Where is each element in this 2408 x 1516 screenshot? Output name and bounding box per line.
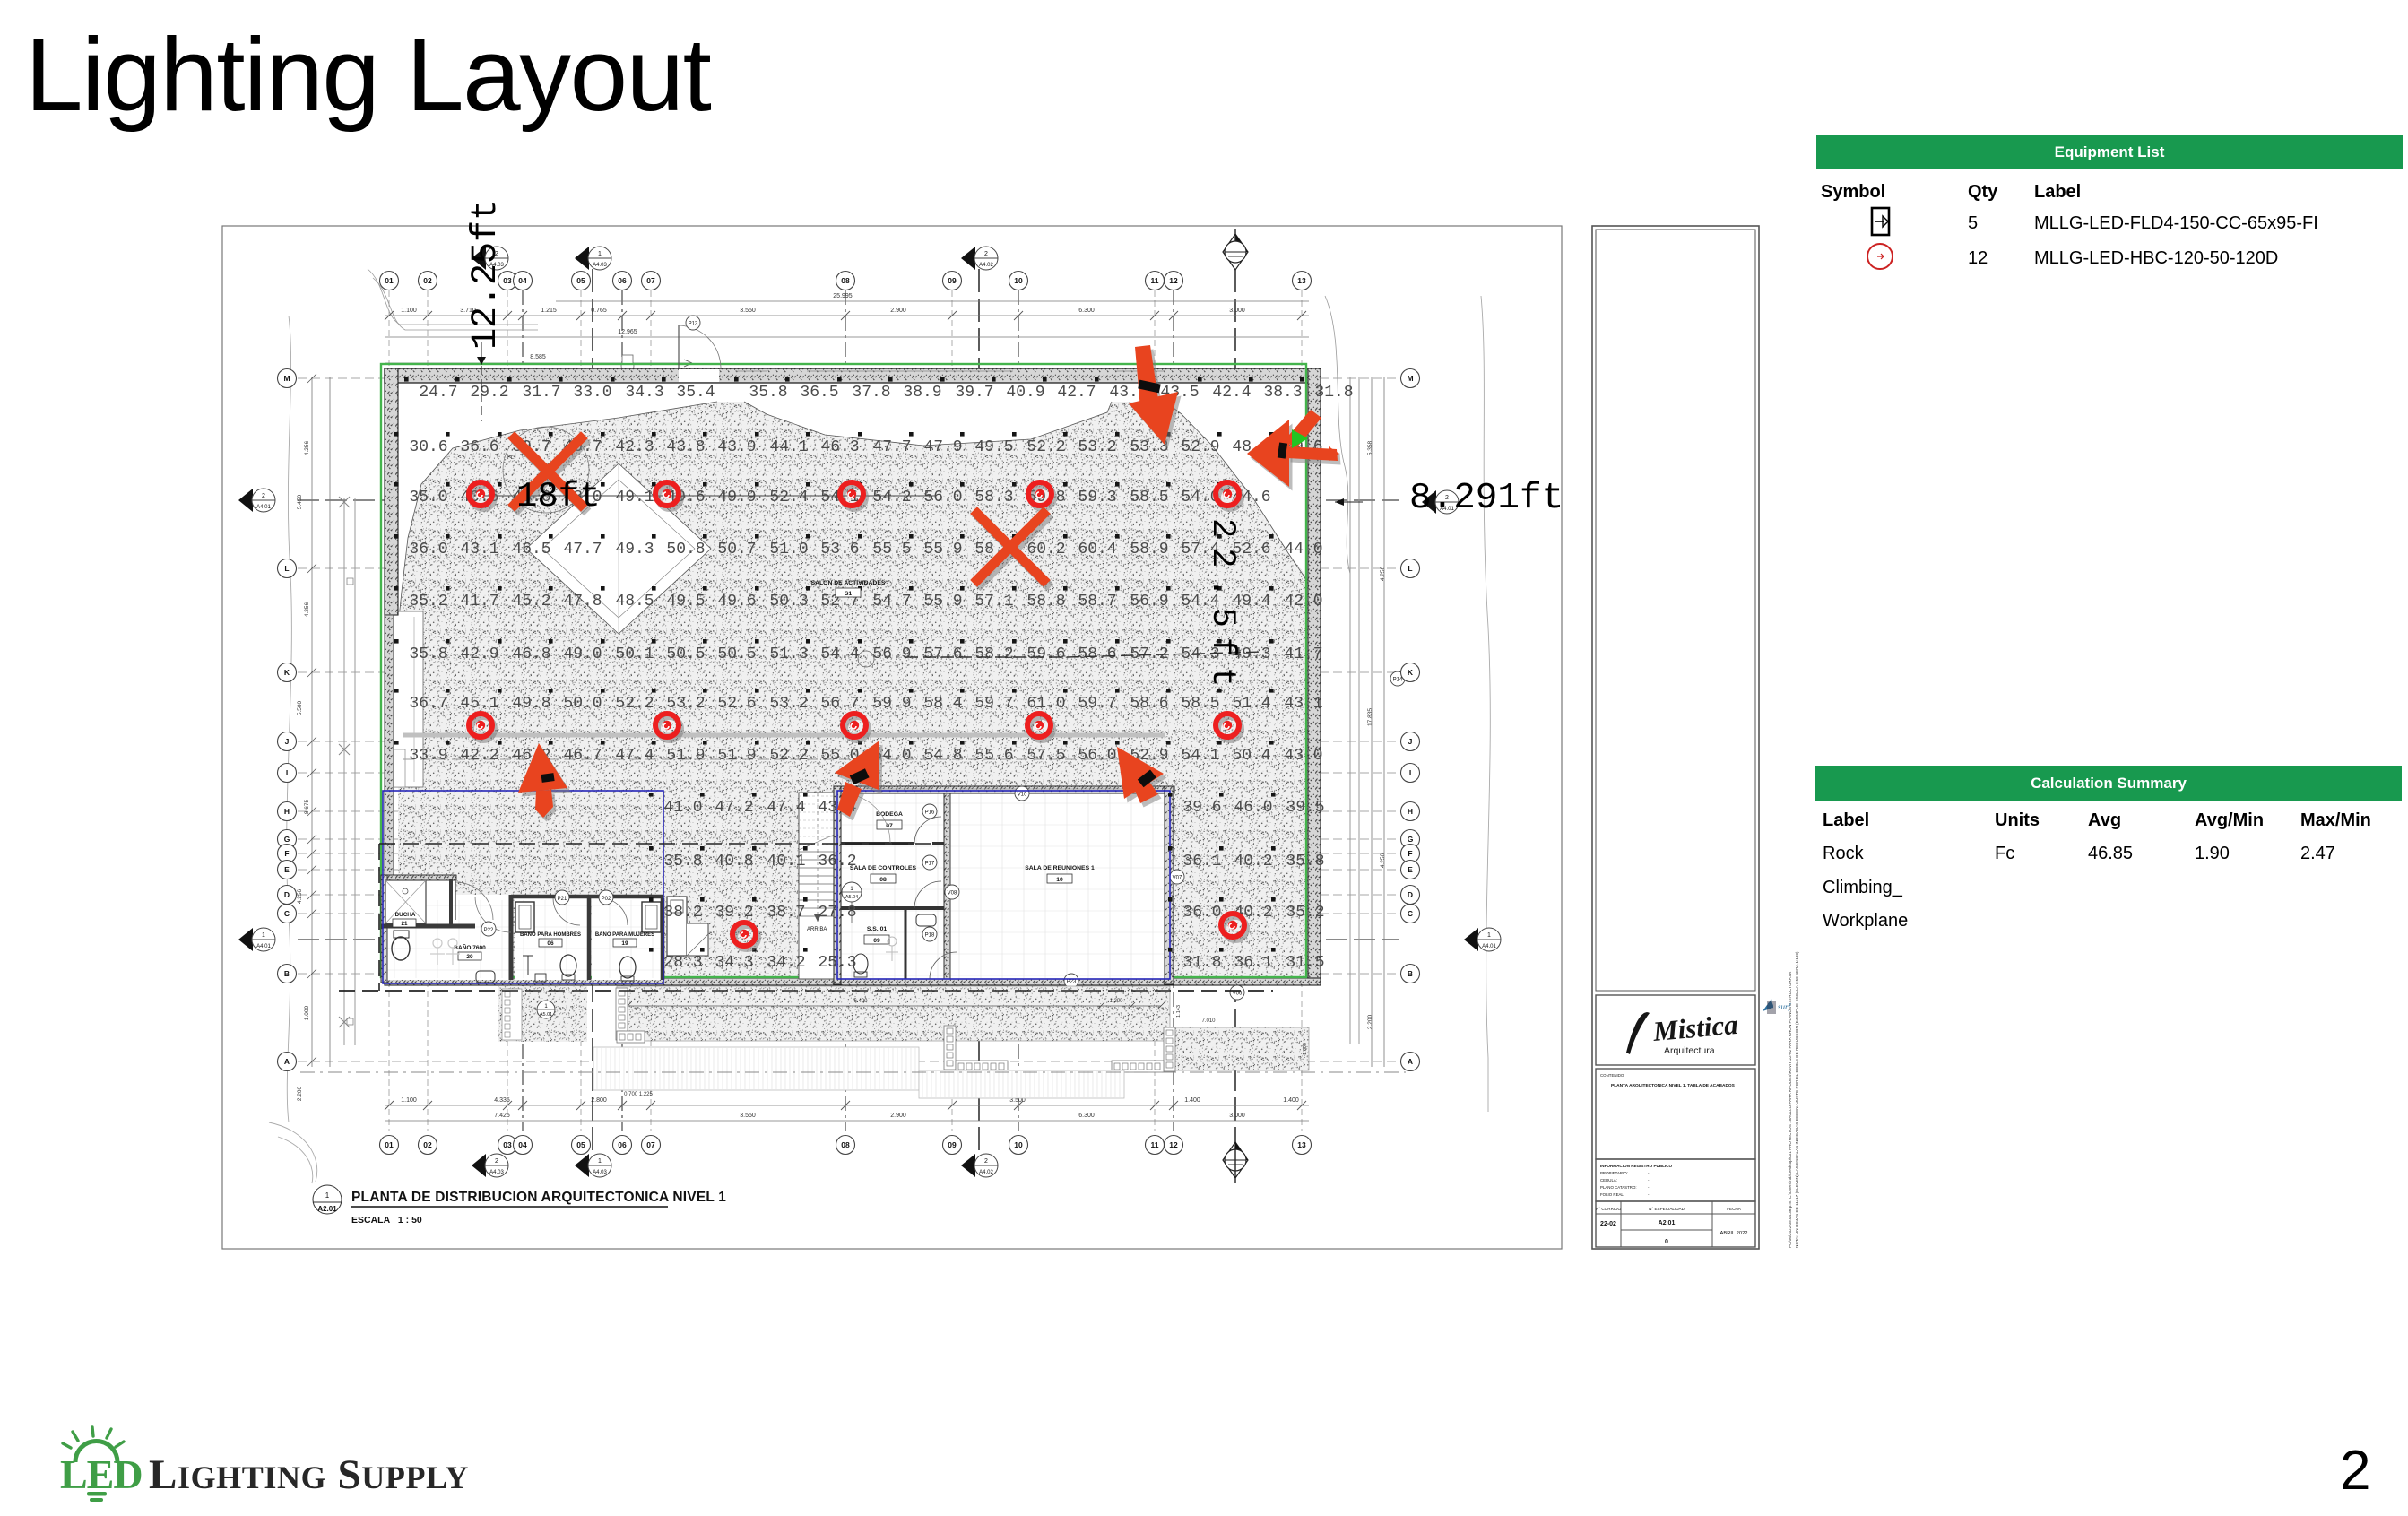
svg-text:22.5ft: 22.5ft — [1203, 518, 1241, 697]
svg-text:4.256: 4.256 — [304, 440, 310, 455]
svg-text:52.4: 52.4 — [769, 489, 808, 507]
svg-text:-: - — [1648, 1192, 1650, 1197]
svg-text:V08: V08 — [948, 891, 957, 897]
svg-text:55.9: 55.9 — [923, 593, 962, 611]
svg-text:S.S. 01: S.S. 01 — [867, 926, 888, 932]
svg-text:44.1: 44.1 — [769, 438, 808, 456]
svg-text:09: 09 — [948, 1140, 957, 1149]
svg-text:A4.02: A4.02 — [979, 1170, 993, 1175]
svg-text:1.400: 1.400 — [1184, 1097, 1200, 1104]
svg-text:S1: S1 — [845, 591, 853, 597]
svg-text:08: 08 — [841, 276, 850, 285]
svg-text:SALA DE REUNIONES 1: SALA DE REUNIONES 1 — [1025, 865, 1095, 871]
svg-text:B: B — [284, 969, 290, 978]
svg-text:36.7: 36.7 — [409, 695, 447, 713]
svg-text:7.010: 7.010 — [1201, 1018, 1216, 1024]
svg-text:E: E — [1408, 865, 1413, 874]
svg-text:36.1: 36.1 — [1234, 954, 1272, 972]
svg-text:25.3: 25.3 — [818, 954, 856, 972]
svg-text:33.9: 33.9 — [409, 747, 447, 765]
svg-text:G: G — [284, 835, 290, 844]
svg-text:05: 05 — [576, 276, 585, 285]
svg-text:53.2: 53.2 — [769, 695, 808, 713]
svg-text:50.4: 50.4 — [1232, 747, 1270, 765]
svg-text:BAÑO PARA MUJERES: BAÑO PARA MUJERES — [595, 931, 654, 938]
svg-text:38.7: 38.7 — [767, 904, 805, 922]
svg-text:35.8: 35.8 — [749, 384, 787, 402]
svg-text:57.6: 57.6 — [923, 645, 962, 663]
svg-text:50.5: 50.5 — [666, 645, 705, 663]
svg-text:C: C — [284, 909, 290, 918]
svg-text:34.2: 34.2 — [767, 954, 805, 972]
svg-text:39.7: 39.7 — [955, 384, 993, 402]
svg-text:55.6: 55.6 — [974, 747, 1013, 765]
svg-text:1.000: 1.000 — [304, 1005, 310, 1020]
svg-text:43.1: 43.1 — [460, 541, 498, 559]
svg-text:35.2: 35.2 — [409, 593, 447, 611]
svg-text:31.5: 31.5 — [1286, 954, 1324, 972]
svg-text:49.0: 49.0 — [563, 645, 602, 663]
svg-text:50.1: 50.1 — [615, 645, 654, 663]
svg-text:F: F — [1408, 849, 1412, 858]
svg-text:47.4: 47.4 — [767, 799, 805, 817]
svg-text:56.9: 56.9 — [1130, 593, 1168, 611]
svg-text:1.600: 1.600 — [1303, 1043, 1308, 1055]
svg-text:28.3: 28.3 — [663, 954, 702, 972]
svg-text:35.2: 35.2 — [1286, 904, 1324, 922]
svg-text:surf: surf — [1778, 1002, 1792, 1011]
svg-text:56.7: 56.7 — [820, 695, 859, 713]
svg-text:36.6: 36.6 — [460, 438, 498, 456]
svg-text:49.8: 49.8 — [512, 695, 550, 713]
svg-text:17.835: 17.835 — [1367, 708, 1373, 726]
svg-text:36.0: 36.0 — [409, 541, 447, 559]
svg-text:39.2: 39.2 — [715, 904, 753, 922]
svg-text:PLANTA ARQUITECTONICA NIVEL 1,: PLANTA ARQUITECTONICA NIVEL 1, TABLA DE … — [1611, 1083, 1736, 1088]
svg-text:50.7: 50.7 — [717, 541, 756, 559]
svg-text:45.2: 45.2 — [512, 593, 550, 611]
svg-text:J: J — [285, 737, 290, 746]
svg-text:07: 07 — [646, 276, 655, 285]
svg-text:47.7: 47.7 — [872, 438, 911, 456]
svg-text:47.4: 47.4 — [615, 747, 654, 765]
svg-text:49.5: 49.5 — [974, 438, 1013, 456]
svg-text:41.0: 41.0 — [663, 799, 702, 817]
svg-text:42.3: 42.3 — [615, 438, 654, 456]
svg-text:PROPIETARIO:: PROPIETARIO: — [1600, 1171, 1628, 1175]
svg-text:59.3: 59.3 — [1078, 489, 1116, 507]
svg-text:L: L — [284, 564, 289, 573]
svg-text:40.9: 40.9 — [1006, 384, 1044, 402]
svg-text:Mistica: Mistica — [1651, 1009, 1739, 1047]
svg-text:A2.01: A2.01 — [317, 1205, 337, 1213]
svg-text:58.4: 58.4 — [923, 695, 962, 713]
svg-text:37.8: 37.8 — [852, 384, 890, 402]
svg-text:25.995: 25.995 — [833, 293, 853, 299]
svg-text:J: J — [1408, 737, 1413, 746]
svg-text:I: I — [1409, 768, 1411, 777]
svg-text:K: K — [1408, 668, 1414, 677]
svg-text:03: 03 — [503, 1140, 512, 1149]
svg-text:59.7: 59.7 — [974, 695, 1013, 713]
svg-text:39.6: 39.6 — [1182, 799, 1221, 817]
svg-text:52.2: 52.2 — [1026, 438, 1065, 456]
svg-text:2: 2 — [984, 1158, 988, 1165]
svg-text:47.9: 47.9 — [923, 438, 962, 456]
svg-text:A4.01: A4.01 — [1482, 944, 1496, 949]
svg-text:47.2: 47.2 — [715, 799, 753, 817]
svg-text:58.8: 58.8 — [1026, 593, 1065, 611]
svg-text:SALA DE CONTROLES: SALA DE CONTROLES — [850, 865, 917, 871]
svg-text:1: 1 — [325, 1191, 330, 1200]
svg-text:Arquitectura: Arquitectura — [1664, 1045, 1715, 1056]
svg-text:G: G — [1408, 835, 1414, 844]
svg-text:40.8: 40.8 — [715, 853, 753, 871]
svg-text:57.1: 57.1 — [974, 593, 1013, 611]
svg-text:36.1: 36.1 — [1182, 853, 1221, 871]
svg-text:3.000: 3.000 — [1229, 1113, 1245, 1119]
svg-text:2.200: 2.200 — [1367, 1014, 1373, 1029]
svg-text:31.8: 31.8 — [1314, 384, 1353, 402]
svg-text:4.256: 4.256 — [297, 888, 303, 904]
svg-text:49.6: 49.6 — [717, 593, 756, 611]
svg-text:A: A — [284, 1057, 290, 1066]
svg-text:56.0: 56.0 — [923, 489, 962, 507]
svg-text:3.550: 3.550 — [740, 308, 756, 314]
svg-text:57.5: 57.5 — [1026, 747, 1065, 765]
svg-text:35.0: 35.0 — [409, 489, 447, 507]
svg-text:41.7: 41.7 — [460, 593, 498, 611]
svg-text:N° CORRIDO: N° CORRIDO — [1596, 1207, 1622, 1211]
svg-text:27.8: 27.8 — [818, 904, 856, 922]
svg-text:-: - — [1648, 1171, 1650, 1175]
svg-text:43.9: 43.9 — [717, 438, 756, 456]
svg-text:DUCHA: DUCHA — [395, 912, 416, 918]
svg-text:FECHA: FECHA — [1727, 1207, 1742, 1211]
svg-text:39.5: 39.5 — [1286, 799, 1324, 817]
svg-text:53.6: 53.6 — [820, 541, 859, 559]
svg-text:A4.02: A4.02 — [979, 263, 993, 268]
svg-text:2.800: 2.800 — [591, 1097, 607, 1104]
svg-text:P17: P17 — [925, 862, 935, 867]
svg-text:A5.04: A5.04 — [845, 895, 858, 900]
svg-text:CONTENIDO: CONTENIDO — [1600, 1073, 1624, 1078]
svg-text:41.7: 41.7 — [1284, 645, 1322, 663]
svg-text:54.1: 54.1 — [1181, 747, 1219, 765]
svg-text:D: D — [1408, 890, 1413, 899]
svg-text:C: C — [1408, 909, 1413, 918]
svg-text:A5.01: A5.01 — [540, 1012, 552, 1018]
svg-text:46.3: 46.3 — [820, 438, 859, 456]
svg-text:42.4: 42.4 — [1212, 384, 1251, 402]
svg-text:53.2: 53.2 — [666, 695, 705, 713]
svg-text:D: D — [284, 890, 290, 899]
svg-text:46.7: 46.7 — [563, 747, 602, 765]
svg-text:22-02: 22-02 — [1600, 1221, 1616, 1227]
svg-text:P22: P22 — [484, 928, 494, 933]
svg-text:50.0: 50.0 — [563, 695, 602, 713]
svg-text:53.2: 53.2 — [1078, 438, 1116, 456]
svg-text:1: 1 — [598, 251, 602, 257]
svg-text:ARRIBA: ARRIBA — [807, 927, 827, 932]
svg-text:10: 10 — [1014, 1140, 1023, 1149]
svg-text:58.5: 58.5 — [1181, 695, 1219, 713]
svg-text:43.0: 43.0 — [1284, 747, 1322, 765]
svg-text:V10: V10 — [1018, 793, 1027, 798]
svg-text:M: M — [1407, 374, 1413, 383]
svg-text:8.585: 8.585 — [530, 354, 546, 360]
svg-text:3.550: 3.550 — [740, 1113, 756, 1119]
svg-text:06: 06 — [547, 940, 554, 947]
svg-text:L: L — [1408, 564, 1412, 573]
svg-text:FOLIO REAL:: FOLIO REAL: — [1600, 1192, 1624, 1197]
svg-text:09: 09 — [948, 276, 957, 285]
svg-text:SALON DE ACTIVIDADES: SALON DE ACTIVIDADES — [811, 580, 886, 586]
svg-text:19: 19 — [621, 940, 628, 947]
svg-text:5.358: 5.358 — [1367, 440, 1373, 455]
svg-text:A: A — [1408, 1057, 1413, 1066]
svg-text:61.0: 61.0 — [1026, 695, 1065, 713]
svg-text:51.9: 51.9 — [717, 747, 756, 765]
svg-text:1.215: 1.215 — [541, 308, 557, 314]
svg-text:02: 02 — [423, 1140, 432, 1149]
svg-text:51.9: 51.9 — [666, 747, 705, 765]
svg-text:2: 2 — [495, 1158, 498, 1165]
svg-text:1.100: 1.100 — [401, 1097, 417, 1104]
svg-text:2: 2 — [984, 251, 988, 257]
svg-text:58.5: 58.5 — [1130, 489, 1168, 507]
svg-text:-: - — [1648, 1185, 1650, 1190]
svg-text:N° ESPECIALIDAD: N° ESPECIALIDAD — [1649, 1207, 1685, 1211]
svg-text:P16: P16 — [925, 810, 935, 816]
svg-text:36.0: 36.0 — [1182, 904, 1221, 922]
svg-text:35.8: 35.8 — [1286, 853, 1324, 871]
svg-text:-: - — [1648, 1178, 1650, 1182]
svg-text:31.8: 31.8 — [1182, 954, 1221, 972]
svg-text:12.25ft: 12.25ft — [466, 199, 507, 350]
svg-text:ABRIL 2022: ABRIL 2022 — [1719, 1231, 1747, 1236]
svg-text:7.425: 7.425 — [494, 1113, 510, 1119]
svg-text:1.100: 1.100 — [401, 308, 417, 314]
svg-text:60.2: 60.2 — [1026, 541, 1065, 559]
svg-text:42.9: 42.9 — [460, 645, 498, 663]
svg-text:44.0: 44.0 — [1284, 541, 1322, 559]
svg-text:36.2: 36.2 — [818, 853, 856, 871]
svg-text:PC/06/2022 05:04:36 p.m. C:\: PC/06/2022 05:04:36 p.m. C:\Users\rob\De… — [1788, 971, 1792, 1248]
svg-text:30.6: 30.6 — [409, 438, 447, 456]
svg-text:ESCALA 1 : 50: ESCALA 1 : 50 — [351, 1215, 422, 1226]
svg-text:BAÑO PARA HOMBRES: BAÑO PARA HOMBRES — [520, 931, 581, 938]
svg-text:35.8: 35.8 — [663, 853, 702, 871]
svg-text:46.8: 46.8 — [512, 645, 550, 663]
svg-text:35.4: 35.4 — [676, 384, 715, 402]
svg-text:A2.01: A2.01 — [1659, 1220, 1676, 1226]
svg-text:BAÑO 7600: BAÑO 7600 — [454, 943, 486, 951]
svg-text:50.8: 50.8 — [666, 541, 705, 559]
svg-text:P21: P21 — [558, 897, 567, 902]
svg-text:5.500: 5.500 — [297, 700, 303, 715]
svg-text:50.3: 50.3 — [769, 593, 808, 611]
svg-text:2.200: 2.200 — [297, 1086, 303, 1101]
svg-text:06: 06 — [618, 1140, 627, 1149]
svg-text:PLANO CATASTRO:: PLANO CATASTRO: — [1600, 1185, 1637, 1190]
svg-text:38.2: 38.2 — [663, 904, 702, 922]
svg-text:02: 02 — [423, 276, 432, 285]
svg-text:PLANTA DE DISTRIBUCION ARQUITE: PLANTA DE DISTRIBUCION ARQUITECTONICA NI… — [351, 1190, 726, 1205]
svg-text:18ft: 18ft — [516, 477, 601, 516]
svg-text:13: 13 — [1297, 276, 1306, 285]
svg-text:47.7: 47.7 — [563, 541, 602, 559]
svg-text:INFORMACION REGISTRO PUBLICO: INFORMACION REGISTRO PUBLICO — [1600, 1164, 1673, 1168]
svg-text:42.2: 42.2 — [460, 747, 498, 765]
svg-text:4.256: 4.256 — [1380, 566, 1386, 581]
svg-text:21: 21 — [401, 921, 408, 927]
svg-text:40.1: 40.1 — [767, 853, 805, 871]
svg-text:34.3: 34.3 — [625, 384, 663, 402]
svg-text:09: 09 — [873, 938, 880, 944]
svg-text:H: H — [1408, 807, 1413, 816]
svg-text:6.300: 6.300 — [1078, 1113, 1095, 1119]
svg-text:M: M — [283, 374, 290, 383]
svg-text:1.400: 1.400 — [1283, 1097, 1299, 1104]
svg-text:P18: P18 — [925, 933, 935, 939]
svg-text:56.9: 56.9 — [872, 645, 911, 663]
svg-text:4.256: 4.256 — [1380, 853, 1386, 868]
svg-text:54.4: 54.4 — [820, 645, 859, 663]
svg-text:54.2: 54.2 — [872, 489, 911, 507]
svg-text:2.900: 2.900 — [890, 308, 906, 314]
svg-text:P02: P02 — [602, 897, 611, 902]
svg-text:V06: V06 — [1233, 992, 1243, 997]
svg-text:P14: P14 — [1393, 678, 1403, 683]
svg-text:49.5: 49.5 — [666, 593, 705, 611]
svg-text:8.291ft: 8.291ft — [1409, 478, 1563, 519]
svg-text:31.7: 31.7 — [522, 384, 560, 402]
svg-text:A4.01: A4.01 — [256, 505, 271, 510]
svg-text:5.450: 5.450 — [297, 494, 303, 509]
svg-text:06: 06 — [618, 276, 627, 285]
svg-text:10: 10 — [1056, 877, 1063, 883]
svg-text:58.3: 58.3 — [974, 489, 1013, 507]
svg-text:1: 1 — [598, 1158, 602, 1165]
svg-text:12: 12 — [1169, 276, 1178, 285]
svg-text:LED: LED — [60, 1451, 143, 1497]
svg-text:59.9: 59.9 — [872, 695, 911, 713]
svg-text:55.5: 55.5 — [872, 541, 911, 559]
svg-text:54.8: 54.8 — [923, 747, 962, 765]
svg-text:51.3: 51.3 — [769, 645, 808, 663]
svg-text:29.2: 29.2 — [470, 384, 508, 402]
svg-text:A4.03: A4.03 — [489, 1170, 504, 1175]
svg-text:B: B — [1408, 969, 1413, 978]
svg-text:07: 07 — [646, 1140, 655, 1149]
svg-text:40.2: 40.2 — [1234, 853, 1272, 871]
svg-text:24.7: 24.7 — [419, 384, 457, 402]
svg-text:34.3: 34.3 — [715, 954, 753, 972]
svg-text:58.7: 58.7 — [1078, 593, 1116, 611]
svg-text:54.7: 54.7 — [872, 593, 911, 611]
svg-text:43.8: 43.8 — [666, 438, 705, 456]
svg-text:36.5: 36.5 — [800, 384, 838, 402]
svg-text:11: 11 — [1151, 1140, 1159, 1149]
svg-text:58.2: 58.2 — [974, 645, 1013, 663]
svg-text:48.5: 48.5 — [615, 593, 654, 611]
svg-text:59.7: 59.7 — [1078, 695, 1116, 713]
svg-text:59.6: 59.6 — [1026, 645, 1065, 663]
svg-text:38.9: 38.9 — [903, 384, 941, 402]
svg-text:52.2: 52.2 — [769, 747, 808, 765]
svg-text:60.4: 60.4 — [1078, 541, 1116, 559]
svg-text:01: 01 — [385, 276, 394, 285]
svg-text:A4.03: A4.03 — [593, 263, 607, 268]
svg-text:1.200: 1.200 — [1109, 999, 1123, 1004]
svg-text:I: I — [286, 768, 288, 777]
svg-text:04: 04 — [518, 276, 527, 285]
svg-text:52.2: 52.2 — [615, 695, 654, 713]
svg-text:13: 13 — [1297, 1140, 1306, 1149]
svg-text:50.5: 50.5 — [717, 645, 756, 663]
svg-text:A4.03: A4.03 — [593, 1170, 607, 1175]
svg-text:49.9: 49.9 — [717, 489, 756, 507]
svg-text:52.6: 52.6 — [717, 695, 756, 713]
svg-text:42.7: 42.7 — [1057, 384, 1096, 402]
svg-text:56.0: 56.0 — [1078, 747, 1116, 765]
svg-text:35.8: 35.8 — [409, 645, 447, 663]
svg-text:F: F — [284, 849, 289, 858]
svg-text:49.1: 49.1 — [615, 489, 654, 507]
svg-text:10: 10 — [1014, 276, 1023, 285]
svg-text:0: 0 — [1665, 1239, 1668, 1245]
svg-text:51.0: 51.0 — [769, 541, 808, 559]
svg-text:51.4: 51.4 — [1232, 695, 1270, 713]
svg-text:45.1: 45.1 — [460, 695, 498, 713]
svg-text:01: 01 — [385, 1140, 394, 1149]
svg-text:43.1: 43.1 — [1284, 695, 1322, 713]
svg-text:12.965: 12.965 — [618, 329, 637, 335]
svg-text:11: 11 — [1151, 276, 1159, 285]
svg-text:46.0: 46.0 — [1234, 799, 1272, 817]
svg-text:3.000: 3.000 — [1229, 308, 1245, 314]
svg-text:52.9: 52.9 — [1181, 438, 1219, 456]
svg-text:58.9: 58.9 — [1130, 541, 1168, 559]
svg-text:NOTA: UN HOJAS DE 11x17 (ELEVE: NOTA: UN HOJAS DE 11x17 (ELEVEN) LAS ESC… — [1795, 951, 1799, 1248]
svg-text:P23: P23 — [1067, 980, 1077, 985]
svg-text:P13: P13 — [689, 322, 698, 327]
svg-text:47.8: 47.8 — [563, 593, 602, 611]
svg-text:38.3: 38.3 — [1263, 384, 1302, 402]
svg-text:8.675: 8.675 — [304, 799, 310, 814]
svg-text:08: 08 — [841, 1140, 850, 1149]
svg-text:H: H — [284, 807, 290, 816]
svg-text:42.0: 42.0 — [1284, 593, 1322, 611]
svg-text:1: 1 — [1487, 932, 1491, 939]
svg-text:6.400: 6.400 — [853, 999, 868, 1004]
svg-text:4.335: 4.335 — [494, 1097, 510, 1104]
svg-text:1.143: 1.143 — [1176, 1005, 1182, 1018]
svg-text:2.900: 2.900 — [890, 1113, 906, 1119]
svg-text:58.6: 58.6 — [1130, 695, 1168, 713]
svg-text:2: 2 — [262, 493, 265, 499]
svg-text:58.6: 58.6 — [1078, 645, 1116, 663]
svg-text:K: K — [284, 668, 290, 677]
svg-text:1: 1 — [262, 932, 265, 939]
svg-text:6.300: 6.300 — [1078, 308, 1095, 314]
svg-text:08: 08 — [879, 877, 887, 883]
svg-text:0.700 1.225: 0.700 1.225 — [624, 1092, 653, 1097]
svg-text:LIGHTING SUPPLY: LIGHTING SUPPLY — [149, 1451, 469, 1498]
svg-text:05: 05 — [576, 1140, 585, 1149]
svg-text:V07: V07 — [1173, 876, 1182, 881]
